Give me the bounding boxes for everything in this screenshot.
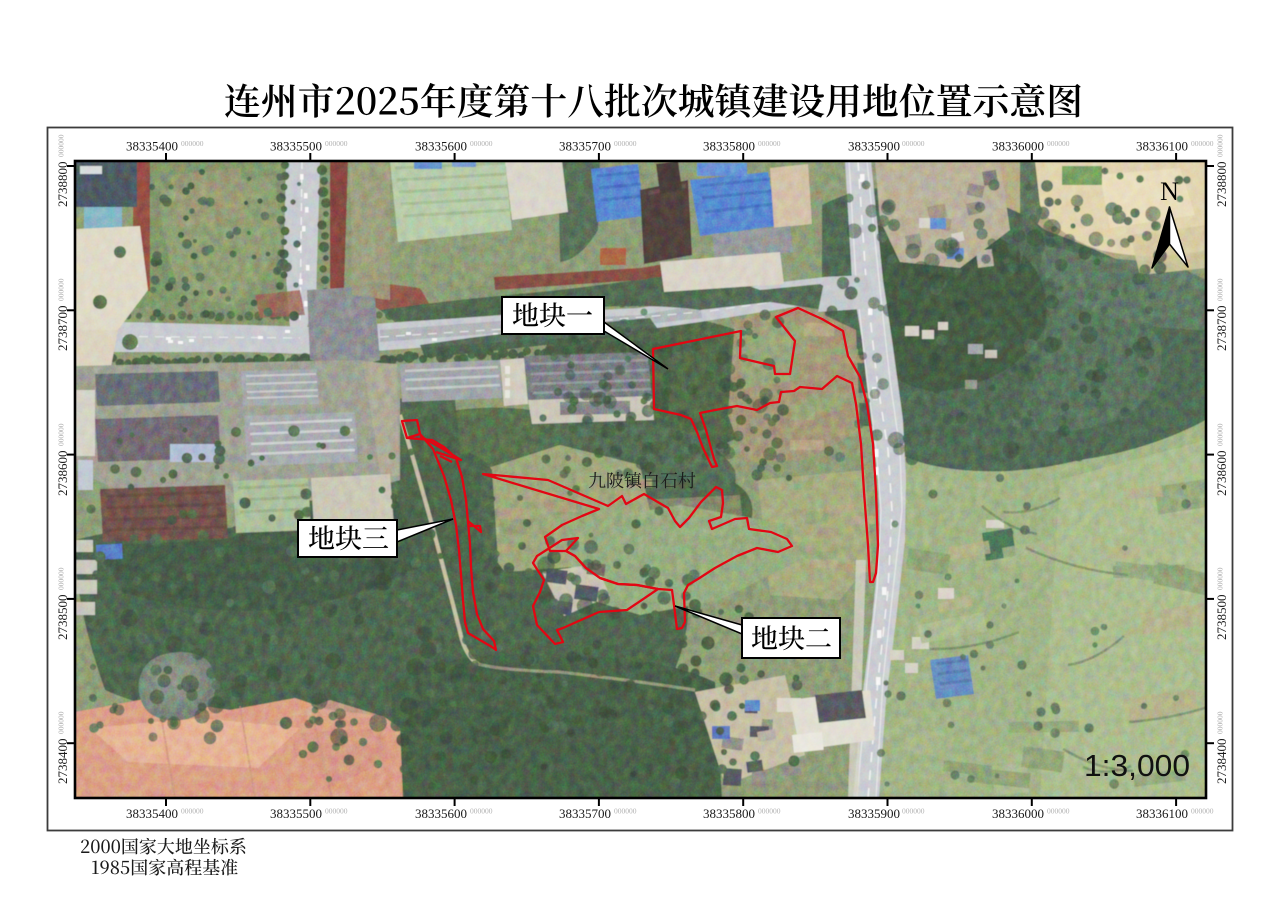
- svg-text:38335600: 38335600: [415, 139, 467, 154]
- svg-text:38335600: 38335600: [415, 806, 467, 821]
- svg-text:38335800: 38335800: [703, 806, 755, 821]
- svg-text:1:3,000: 1:3,000: [1084, 748, 1190, 783]
- svg-text:38335500: 38335500: [270, 806, 322, 821]
- svg-text:000000: 000000: [1047, 139, 1070, 148]
- svg-text:38335800: 38335800: [703, 139, 755, 154]
- svg-text:000000: 000000: [1216, 567, 1225, 590]
- svg-text:38335900: 38335900: [848, 139, 900, 154]
- svg-text:38335400: 38335400: [126, 806, 178, 821]
- svg-text:38335400: 38335400: [126, 139, 178, 154]
- svg-text:2738500: 2738500: [1214, 595, 1229, 641]
- svg-text:2738400: 2738400: [55, 739, 70, 785]
- svg-text:2738400: 2738400: [1214, 739, 1229, 785]
- svg-text:000000: 000000: [1216, 278, 1225, 301]
- svg-text:2738600: 2738600: [55, 451, 70, 497]
- svg-text:2738600: 2738600: [1214, 451, 1229, 497]
- svg-text:000000: 000000: [325, 807, 348, 816]
- svg-text:000000: 000000: [1191, 807, 1214, 816]
- svg-text:2738800: 2738800: [55, 162, 70, 208]
- svg-text:38335900: 38335900: [848, 806, 900, 821]
- svg-text:000000: 000000: [902, 139, 925, 148]
- svg-text:38335700: 38335700: [559, 139, 611, 154]
- svg-text:2738800: 2738800: [1214, 162, 1229, 208]
- svg-text:2738700: 2738700: [1214, 306, 1229, 352]
- svg-text:38335700: 38335700: [559, 806, 611, 821]
- svg-text:000000: 000000: [325, 139, 348, 148]
- svg-text:000000: 000000: [181, 807, 204, 816]
- svg-text:38336100: 38336100: [1136, 139, 1188, 154]
- svg-text:000000: 000000: [57, 278, 66, 301]
- svg-text:000000: 000000: [1047, 807, 1070, 816]
- svg-text:000000: 000000: [902, 807, 925, 816]
- svg-text:000000: 000000: [1216, 134, 1225, 157]
- svg-text:000000: 000000: [1191, 139, 1214, 148]
- svg-text:38336000: 38336000: [992, 806, 1044, 821]
- svg-text:000000: 000000: [1216, 711, 1225, 734]
- svg-text:000000: 000000: [181, 139, 204, 148]
- svg-text:000000: 000000: [57, 567, 66, 590]
- svg-text:2738700: 2738700: [55, 306, 70, 352]
- svg-text:000000: 000000: [614, 139, 637, 148]
- svg-text:000000: 000000: [1216, 423, 1225, 446]
- svg-text:2738500: 2738500: [55, 595, 70, 641]
- svg-text:000000: 000000: [758, 807, 781, 816]
- svg-text:000000: 000000: [470, 807, 493, 816]
- svg-text:38336100: 38336100: [1136, 806, 1188, 821]
- svg-text:N: N: [1160, 177, 1179, 206]
- svg-text:000000: 000000: [470, 139, 493, 148]
- svg-text:000000: 000000: [57, 423, 66, 446]
- svg-text:000000: 000000: [57, 134, 66, 157]
- svg-text:000000: 000000: [758, 139, 781, 148]
- svg-text:38336000: 38336000: [992, 139, 1044, 154]
- svg-text:000000: 000000: [57, 711, 66, 734]
- svg-text:000000: 000000: [614, 807, 637, 816]
- svg-text:38335500: 38335500: [270, 139, 322, 154]
